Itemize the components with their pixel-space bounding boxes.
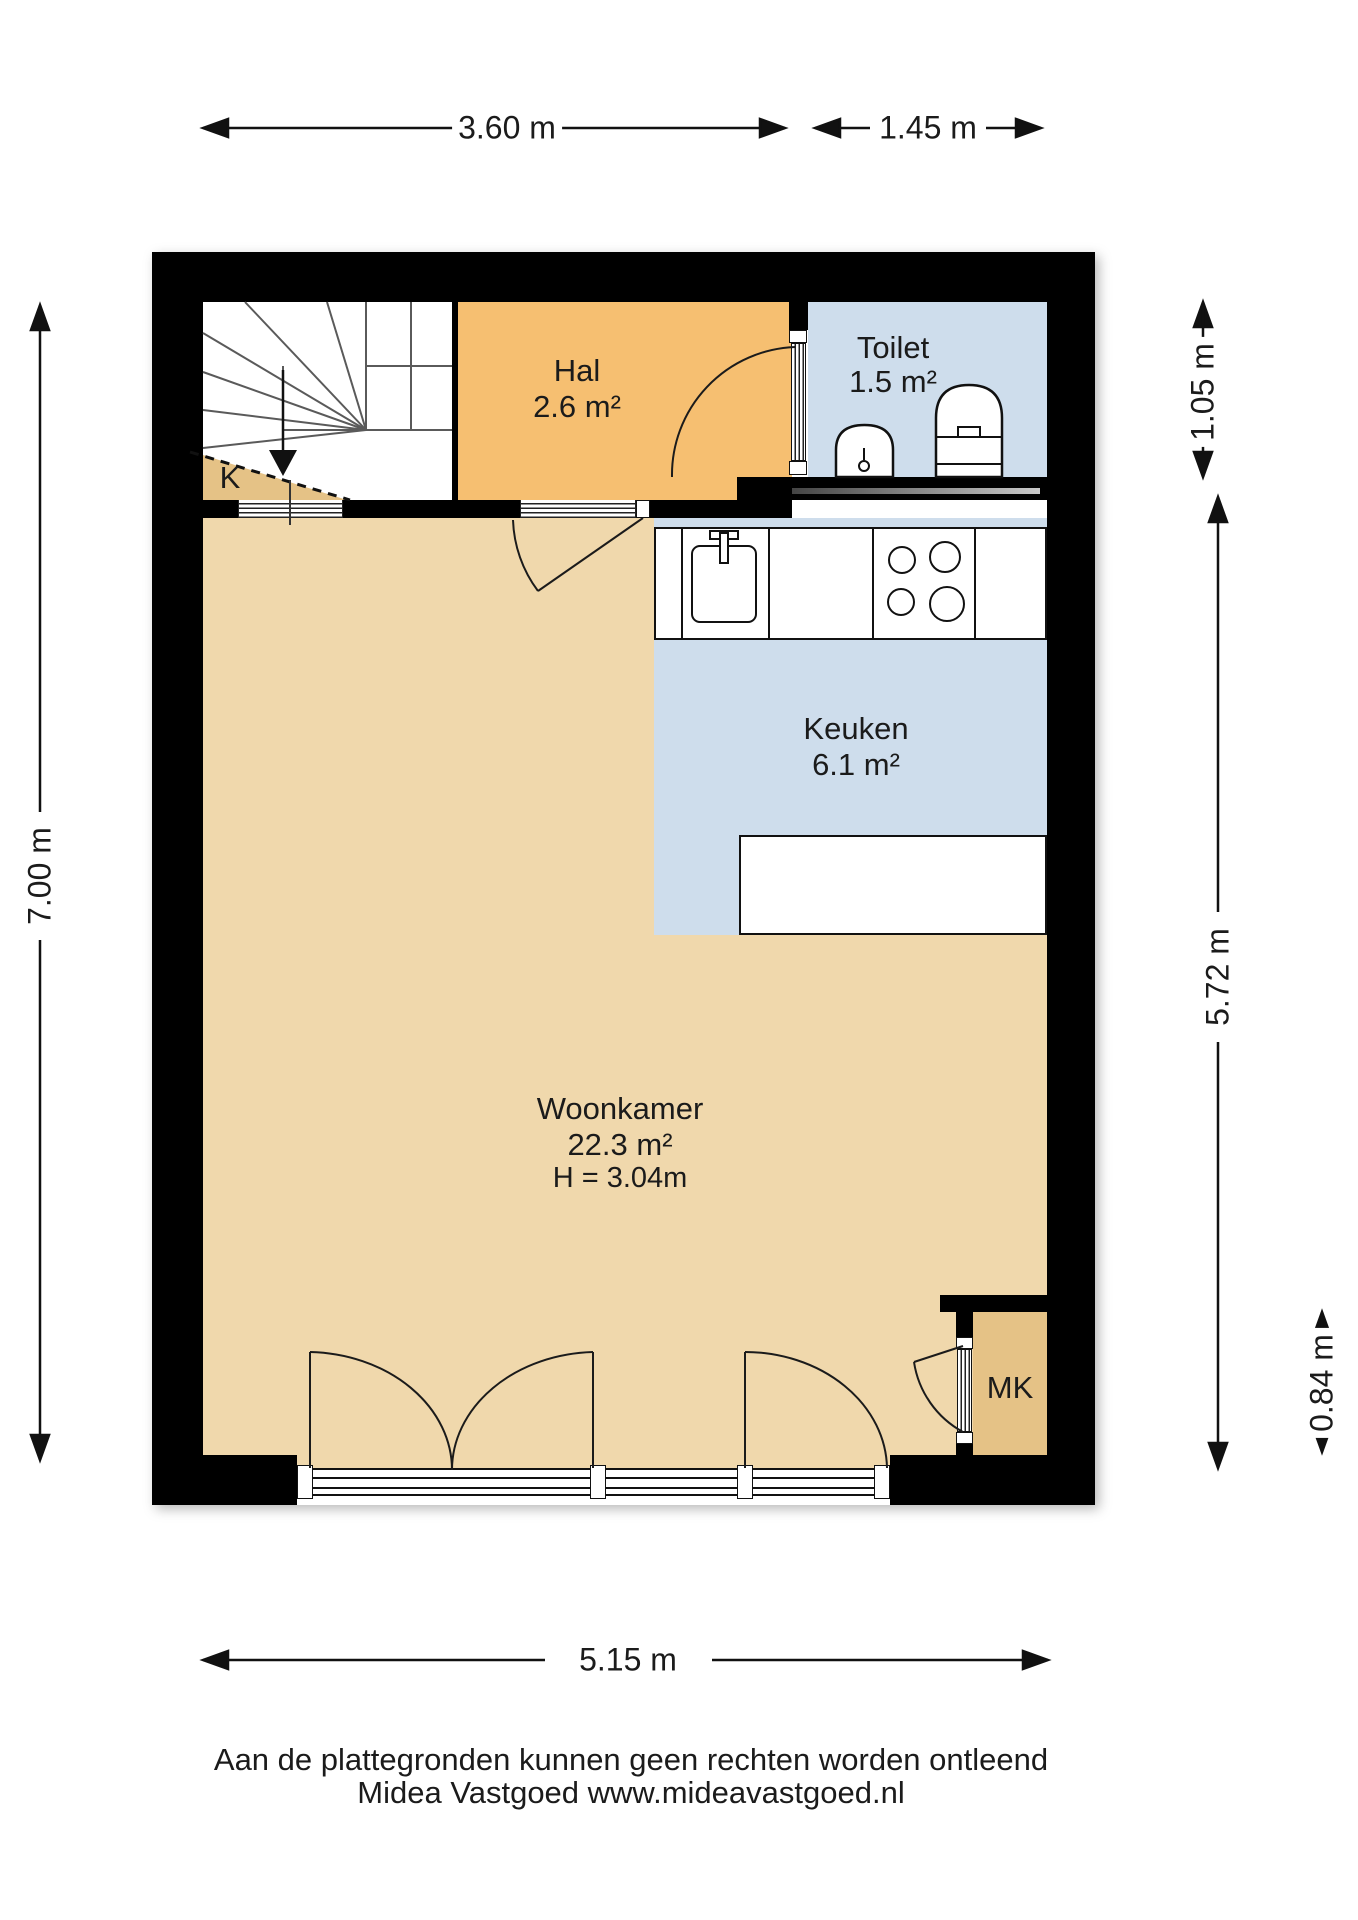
- hal-door-threshold: [520, 500, 636, 518]
- kitchen-island: [739, 835, 1047, 935]
- exterior-wall-right: [1047, 252, 1095, 1505]
- exterior-wall-bottom-right: [890, 1455, 1095, 1505]
- woonkamer-label: Woonkamer: [537, 1092, 704, 1126]
- floorplan-building: [152, 252, 1095, 1505]
- wall-lintel-bar: [792, 488, 1040, 494]
- footer-disclaimer: Aan de plattegronden kunnen geen rechten…: [214, 1742, 1048, 1778]
- toilet-door-hinge-top: [789, 330, 807, 343]
- toilet-area-label: 1.5 m²: [849, 365, 937, 399]
- mk-door-hinge-bottom: [956, 1432, 973, 1444]
- dim-right-middle: 5.72 m: [1200, 922, 1235, 1032]
- room-hal: [455, 302, 792, 500]
- dim-top-right: 1.45 m: [873, 110, 983, 145]
- exterior-wall-bottom-left: [152, 1455, 297, 1505]
- mk-door-leaf: [957, 1349, 972, 1432]
- dim-right-bottom: 0.84 m: [1304, 1328, 1339, 1438]
- hal-area-label: 2.6 m²: [533, 390, 621, 424]
- toilet-door-leaf: [791, 343, 806, 461]
- meterkast-label: MK: [987, 1371, 1034, 1405]
- hal-door-hinge: [636, 500, 650, 518]
- stair-hal-divider-wall: [452, 302, 458, 518]
- woonkamer-area-label: 22.3 m²: [567, 1128, 672, 1162]
- kitchen-counter: [654, 527, 1047, 640]
- window-mullion-2: [590, 1465, 606, 1499]
- window-mullion-4: [874, 1465, 890, 1499]
- kast-label: K: [220, 461, 241, 495]
- dim-bottom: 5.15 m: [573, 1642, 683, 1677]
- hal-label: Hal: [554, 354, 601, 388]
- mk-left-wall-upper: [956, 1295, 973, 1337]
- dim-right-top: 1.05 m: [1185, 337, 1220, 447]
- window-mullion-3: [737, 1465, 753, 1499]
- dim-top-left: 3.60 m: [452, 110, 562, 145]
- footer-company: Midea Vastgoed www.mideavastgoed.nl: [357, 1775, 904, 1811]
- woonkamer-height-label: H = 3.04m: [553, 1163, 688, 1195]
- understair-hatch: [238, 500, 343, 518]
- window-mullion-1: [297, 1465, 313, 1499]
- mk-door-hinge-top: [956, 1337, 973, 1349]
- keuken-area-label: 6.1 m²: [812, 748, 900, 782]
- floorplan-page: Hal 2.6 m² Toilet 1.5 m² Keuken 6.1 m² W…: [0, 0, 1358, 1920]
- toilet-label: Toilet: [857, 331, 929, 365]
- keuken-label: Keuken: [803, 712, 908, 746]
- exterior-wall-top: [152, 252, 1095, 302]
- hal-toilet-divider-wall: [789, 302, 808, 330]
- exterior-wall-left: [152, 252, 203, 1505]
- toilet-door-hinge-bottom: [789, 461, 807, 475]
- dim-left: 7.00 m: [22, 821, 57, 931]
